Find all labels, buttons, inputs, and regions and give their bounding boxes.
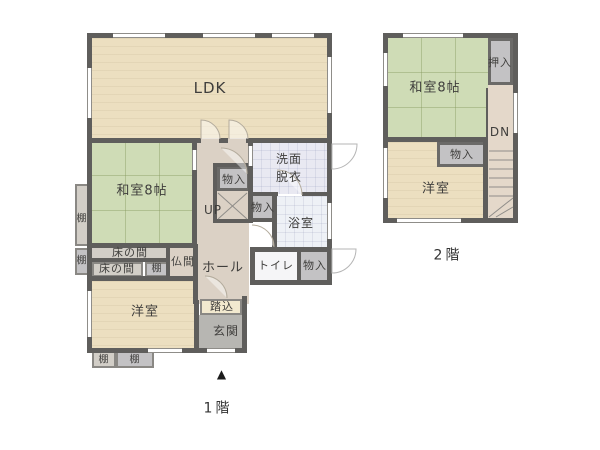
floor-1-caption: 1階 <box>204 399 233 420</box>
room-label-tana-left-2: 棚 <box>77 254 88 269</box>
window-opening <box>272 33 314 38</box>
window-opening <box>248 146 253 166</box>
floor-2-caption: 2階 <box>434 246 463 267</box>
window-opening <box>87 68 92 118</box>
room-label-monoire-stairs: 物入 <box>222 172 246 189</box>
window-opening <box>383 148 388 198</box>
room-label-monoire-2f: 物入 <box>450 147 474 164</box>
window-opening <box>327 203 332 239</box>
room-label-oshiire: 押入 <box>488 55 512 72</box>
room-label-tokonoma-1: 床の間 <box>112 245 148 262</box>
wall-segment <box>297 252 301 280</box>
room-label-tana-bottom-2: 棚 <box>130 353 141 368</box>
room-label-senmen-datsui: 洗面 脱衣 <box>276 150 302 186</box>
room-label-ldk: LDK <box>194 77 227 100</box>
room-label-tokonoma-2: 床の間 <box>99 261 135 278</box>
wall-segment <box>166 246 170 278</box>
room-label-tana-left-1: 棚 <box>77 212 88 227</box>
wall-segment <box>242 296 247 353</box>
window-opening <box>203 33 255 38</box>
room-label-yoshitsu-2f: 洋室 <box>422 179 450 199</box>
room-label-fumikomi: 踏込 <box>210 299 234 316</box>
window-opening <box>397 218 461 223</box>
floor-plan-canvas: LDK和室8帖ホール洋室洗面 脱衣浴室トイレ物入物入物入仏間床の間床の間棚棚棚棚… <box>0 0 600 450</box>
room-stairs-down-area <box>488 142 513 218</box>
room-label-genkan: 玄関 <box>213 322 239 340</box>
wall-segment <box>194 300 199 353</box>
room-label-toilet: トイレ <box>258 258 294 275</box>
window-opening <box>192 150 197 170</box>
window-opening <box>148 348 182 353</box>
room-label-butsuma: 仏間 <box>171 254 195 271</box>
window-opening <box>403 33 463 38</box>
stairs-up-label: UP <box>204 201 222 219</box>
room-label-monoire-hall: 物入 <box>251 200 275 217</box>
wall-segment <box>213 219 250 223</box>
wall-segment <box>486 88 488 137</box>
wall-segment <box>213 163 250 167</box>
wall-segment <box>302 192 327 196</box>
window-opening <box>383 53 388 86</box>
window-opening <box>327 57 332 113</box>
window-opening <box>113 33 165 38</box>
room-label-hall: ホール <box>202 258 244 278</box>
wall-segment <box>250 247 332 252</box>
entrance-marker-icon: ▲ <box>217 365 227 383</box>
window-opening <box>207 348 235 353</box>
stairs-down-label: DN <box>490 123 510 141</box>
wall-segment <box>87 138 201 143</box>
wall-segment <box>483 137 488 223</box>
room-label-monoire-toilet: 物入 <box>303 258 327 275</box>
wall-segment <box>250 280 332 285</box>
wall-segment <box>327 247 332 285</box>
window-opening <box>513 93 518 133</box>
room-label-washitsu-8jo: 和室8帖 <box>116 181 167 201</box>
room-label-tana-mid: 棚 <box>152 262 163 277</box>
wall-segment <box>383 137 488 142</box>
room-label-washitsu-8jo-2f: 和室8帖 <box>409 78 460 98</box>
wall-segment <box>219 138 228 143</box>
room-label-yoshitsu-1f: 洋室 <box>131 302 159 322</box>
room-label-tana-bottom-1: 棚 <box>99 353 110 368</box>
window-opening <box>87 291 92 337</box>
room-label-yokushitsu: 浴室 <box>288 214 314 232</box>
wall-segment <box>248 218 277 222</box>
wall-segment <box>246 138 332 143</box>
